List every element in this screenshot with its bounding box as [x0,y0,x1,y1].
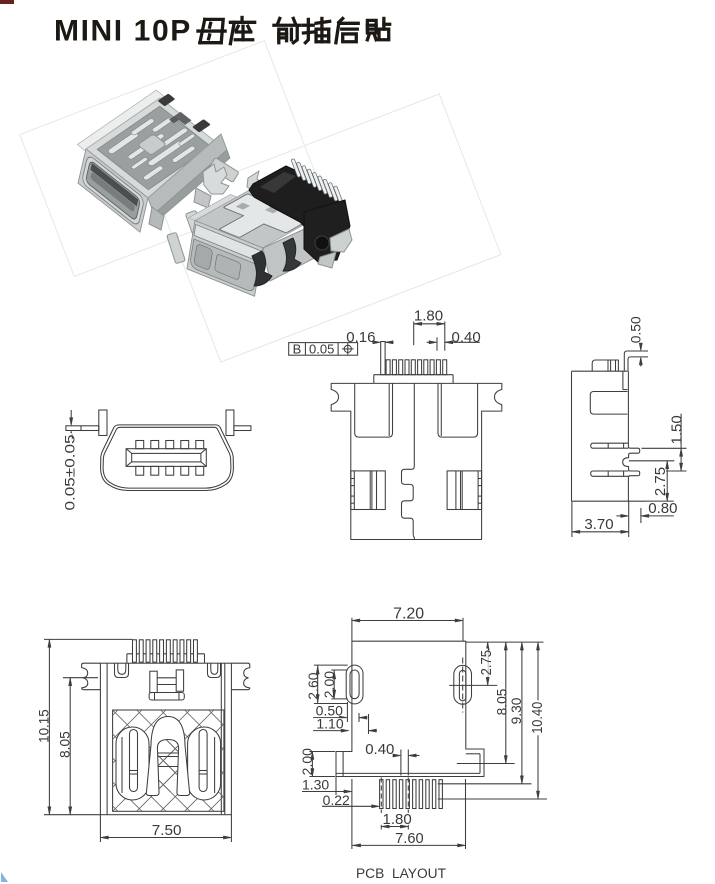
svg-text:0.05±0.05: 0.05±0.05 [62,434,78,510]
svg-text:1.10: 1.10 [316,716,343,732]
svg-text:7.50: 7.50 [152,822,182,839]
svg-text:MINI 10P: MINI 10P [54,15,192,48]
svg-text:8.05: 8.05 [57,731,73,758]
svg-text:0.05: 0.05 [309,341,334,356]
svg-text:2.75: 2.75 [652,467,669,496]
svg-text:0.80: 0.80 [648,500,677,517]
svg-text:0.50: 0.50 [628,316,644,343]
svg-text:2.75: 2.75 [479,650,495,675]
svg-text:B: B [293,341,302,356]
svg-text:10.15: 10.15 [36,709,52,743]
svg-text:1.50: 1.50 [669,415,686,444]
svg-text:2.00: 2.00 [321,671,337,698]
svg-text:0.40: 0.40 [451,329,480,346]
svg-text:PCB LAYOUT: PCB LAYOUT [356,866,446,881]
svg-text:7.60: 7.60 [395,830,424,847]
svg-text:9.30: 9.30 [508,697,524,724]
svg-text:1.30: 1.30 [302,776,329,792]
svg-text:2.60: 2.60 [305,672,321,699]
svg-text:0.40: 0.40 [365,741,394,758]
svg-text:0.16: 0.16 [346,329,375,346]
svg-text:3.70: 3.70 [584,516,613,533]
svg-text:1.80: 1.80 [414,308,443,325]
svg-text:1.80: 1.80 [382,811,411,828]
svg-text:10.40: 10.40 [529,702,546,734]
svg-text:7.20: 7.20 [393,605,424,622]
svg-text:2.00: 2.00 [299,748,315,775]
